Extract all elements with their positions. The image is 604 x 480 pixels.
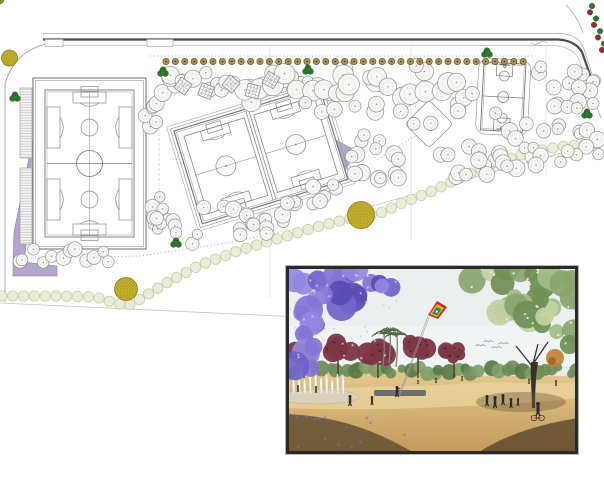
hedge-scallop — [29, 291, 39, 301]
west-soccer-complex — [20, 78, 146, 249]
hedge-scallop — [272, 234, 282, 244]
street-tree — [285, 58, 291, 64]
street-tree — [323, 58, 329, 64]
dark-green-accent-tree — [582, 109, 593, 119]
parking-bay — [147, 40, 173, 47]
white-tree — [424, 116, 438, 130]
street-tree — [313, 58, 319, 64]
hedge-scallop — [8, 291, 18, 301]
street-tree — [520, 58, 526, 64]
street-tree — [436, 58, 442, 64]
white-tree — [192, 229, 202, 239]
photo-distant-tree — [329, 363, 343, 377]
hedge-scallop — [313, 221, 323, 231]
street-tree — [351, 58, 357, 64]
street-tree — [501, 58, 507, 64]
hedge-scallop — [303, 224, 313, 234]
hedge-scallop — [153, 283, 163, 293]
white-tree — [555, 156, 567, 168]
pergola-lattice — [245, 83, 261, 99]
street-tree — [295, 58, 301, 64]
park-master-plan-screenshot — [0, 0, 604, 480]
hedge-scallop — [190, 262, 200, 272]
street-tree — [248, 58, 254, 64]
white-tree — [327, 102, 343, 118]
edge-tree — [597, 28, 603, 34]
street-tree — [163, 58, 169, 64]
street-tree — [304, 58, 310, 64]
large-yellow-canopy — [348, 202, 375, 229]
street-tree — [201, 58, 207, 64]
hedge-scallop — [83, 292, 93, 302]
photo-content — [276, 254, 586, 454]
hedge-scallop — [181, 267, 191, 277]
dark-green-accent-tree — [10, 92, 21, 102]
photo-fallen-petal — [350, 446, 353, 449]
street-tree-row — [163, 58, 526, 64]
hedge-scallop — [436, 182, 446, 192]
street-tree — [417, 58, 423, 64]
white-tree — [450, 103, 466, 119]
photo-orange-tree — [546, 349, 564, 367]
street-tree — [511, 58, 517, 64]
photo-fallen-petal — [318, 417, 321, 420]
street-tree — [379, 58, 385, 64]
hedge-scallop — [282, 231, 292, 241]
hedge-scallop — [548, 143, 558, 153]
hedge-scallop — [171, 272, 181, 282]
white-tree — [546, 80, 561, 95]
large-yellow-canopy — [115, 278, 138, 301]
street-tree — [464, 58, 470, 64]
road-marking-wave — [531, 42, 547, 45]
photo-fallen-petal — [323, 416, 326, 419]
hedge-scallop — [334, 216, 344, 226]
street-tree — [454, 58, 460, 64]
hedge-scallop — [72, 291, 82, 301]
rendering-inset-photo — [276, 254, 586, 455]
street-tree — [182, 58, 188, 64]
street-tree — [426, 58, 432, 64]
street-tree — [276, 58, 282, 64]
hedge-scallop — [293, 228, 303, 238]
street-tree — [229, 58, 235, 64]
parking-bay — [45, 40, 63, 47]
street-tree — [445, 58, 451, 64]
hedge-scallop — [18, 291, 28, 301]
street-tree — [191, 58, 197, 64]
street-tree — [210, 58, 216, 64]
street-tree — [407, 58, 413, 64]
hedge-scallop — [200, 258, 210, 268]
hedge-scallop — [125, 300, 135, 310]
bleachers — [20, 168, 32, 244]
hedge-scallop — [376, 207, 386, 217]
bleachers — [20, 88, 32, 158]
street-tree — [238, 58, 244, 64]
photo-fallen-petal — [403, 433, 406, 436]
white-tree — [408, 118, 421, 131]
hedge-scallop — [0, 291, 7, 301]
street-tree — [332, 58, 338, 64]
street-tree — [473, 58, 479, 64]
hedge-scallop — [406, 194, 416, 204]
hedge-scallop — [241, 243, 251, 253]
photo-tree-shadow — [476, 392, 566, 412]
white-tree — [447, 73, 465, 91]
hedge-scallop — [51, 291, 61, 301]
street-tree — [257, 58, 263, 64]
hedge-scallop — [231, 246, 241, 256]
edge-tree — [589, 3, 595, 9]
photo-fallen-petal — [366, 416, 369, 419]
hedge-scallop — [396, 198, 406, 208]
large-yellow-canopy — [2, 50, 18, 66]
dark-green-accent-tree — [303, 65, 314, 75]
street-tree — [266, 58, 272, 64]
photo-fallen-petal — [337, 443, 340, 446]
street-tree — [398, 58, 404, 64]
white-tree — [358, 129, 370, 141]
white-tree — [587, 97, 599, 109]
white-tree — [471, 152, 487, 168]
photo-distant-tree — [472, 365, 485, 378]
edge-tree — [587, 9, 593, 15]
white-tree — [299, 96, 311, 108]
photo-fallen-petal — [314, 418, 317, 421]
site-boundary-line — [0, 303, 322, 318]
street-tree — [389, 58, 395, 64]
street-tree — [360, 58, 366, 64]
street-tree — [483, 58, 489, 64]
edge-tree-row — [587, 3, 604, 53]
edge-tree — [591, 22, 597, 28]
hedge-scallop — [62, 291, 72, 301]
photo-fallen-petal — [324, 437, 327, 440]
white-tree — [170, 227, 182, 239]
hedge-scallop — [426, 186, 436, 196]
photo-fallen-petal — [369, 421, 372, 424]
photo-fallen-petal — [296, 415, 299, 418]
hedge-scallop — [386, 203, 396, 213]
site-plan-drawing — [0, 0, 604, 480]
hedge-scallop — [416, 190, 426, 200]
white-tree — [150, 212, 164, 226]
street-tree — [219, 58, 225, 64]
hedge-scallop — [104, 296, 114, 306]
dark-green-accent-tree — [482, 48, 493, 58]
white-tree — [547, 99, 562, 114]
edge-tree — [599, 47, 604, 53]
edge-tree — [595, 35, 601, 41]
white-tree — [465, 87, 479, 101]
street-tree — [172, 58, 178, 64]
photo-fallen-petal — [345, 426, 348, 429]
white-tree — [369, 96, 385, 112]
photo-distant-tree — [386, 368, 397, 379]
yellow-tree — [0, 0, 281, 82]
hedge-scallop — [40, 291, 50, 301]
hedge-scallop — [143, 289, 153, 299]
hedge-scallop — [251, 240, 261, 250]
street-tree — [492, 58, 498, 64]
white-tree — [306, 179, 321, 194]
hedge-scallop — [134, 294, 144, 304]
photo-fallen-petal — [305, 415, 308, 418]
white-tree — [338, 74, 359, 95]
hedge-scallop — [94, 293, 104, 303]
street-tree — [370, 58, 376, 64]
hedge-scallop — [162, 277, 172, 287]
hedge-scallop — [210, 254, 220, 264]
hedge-scallop — [221, 250, 231, 260]
white-tree — [393, 104, 408, 119]
dark-green-accent-tree — [171, 238, 182, 248]
street-tree — [342, 58, 348, 64]
corner-road-edge — [566, 5, 583, 33]
edge-tree — [593, 16, 599, 22]
photo-fallen-petal — [359, 441, 362, 444]
hedge-scallop — [324, 219, 334, 229]
white-tree — [349, 100, 361, 112]
photo-fallen-petal — [297, 445, 300, 448]
